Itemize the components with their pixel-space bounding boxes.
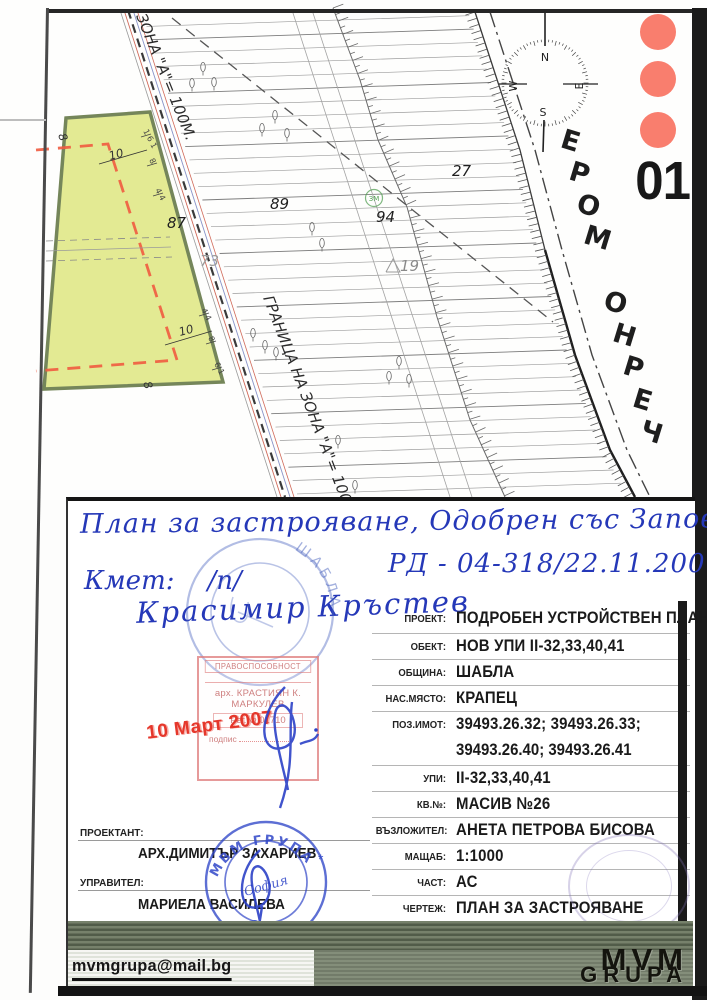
compass-s: S — [540, 106, 547, 119]
red-dot-2 — [640, 61, 676, 97]
table-row: КВ.№: МАСИВ №26 — [372, 791, 690, 818]
bottom-black-bar — [58, 986, 707, 996]
stamp-star-right: * — [318, 851, 324, 867]
red-dot-3 — [640, 112, 676, 148]
map-number-label: 94 — [376, 208, 395, 226]
row-value: ШАБЛА — [456, 662, 514, 682]
designer-label: ПРОЕКТАНТ: — [80, 827, 144, 839]
row-value: 1:1000 — [456, 846, 504, 866]
svg-text:ШАБЛА: ШАБЛА — [292, 540, 343, 611]
site-plan-map: ЗОНА "А"= 100М. ГРАНИЦА НА ЗОНА "А"= 100… — [0, 0, 707, 500]
compass-w: W — [507, 80, 520, 91]
row-value: 39493.26.32; 39493.26.33; — [456, 714, 641, 734]
row-label: МАЩАБ: — [376, 852, 446, 863]
row-label: ПОЗ.ИМОТ: — [376, 720, 446, 731]
row-value-line2: 39493.26.40; 39493.26.41 — [456, 740, 632, 760]
row-value: МАСИВ №26 — [456, 794, 550, 814]
table-row: ОБЕКТ: НОВ УПИ II-32,33,40,41 — [372, 633, 690, 660]
compass-e: E — [573, 82, 586, 89]
map-number-label: 87 — [167, 214, 187, 232]
sheet-number: 01 — [626, 150, 690, 212]
map-number-label: 19 — [400, 257, 419, 275]
row-value: КРАПЕЦ — [456, 688, 517, 708]
table-row: НАС.МЯСТО: КРАПЕЦ — [372, 685, 690, 712]
row-value: НОВ УПИ II-32,33,40,41 — [456, 636, 625, 656]
table-row: ПОЗ.ИМОТ: 39493.26.32; 39493.26.33; 3949… — [372, 711, 690, 766]
scan-artifact-line — [0, 119, 46, 121]
row-value: ПОДРОБЕН УСТРОЙСТВЕН ПЛАН — [456, 608, 707, 628]
row-label: НАС.МЯСТО: — [376, 694, 446, 705]
map-number-label: 89 — [270, 195, 289, 213]
row-label: ЧАСТ: — [376, 878, 446, 889]
row-label: ОБЩИНА: — [376, 668, 446, 679]
company-logo: MVM GRUPA — [520, 944, 688, 986]
svg-text:ЗМ: ЗМ — [369, 195, 380, 203]
row-label: УПИ: — [376, 774, 446, 785]
row-label: КВ.№: — [376, 800, 446, 811]
map-number-label: 27 — [452, 162, 472, 180]
row-value: АС — [456, 872, 478, 892]
row-label: ВЪЗЛОЖИТЕЛ: — [376, 826, 446, 837]
table-row: ОБЩИНА: ШАБЛА — [372, 659, 690, 686]
compass-n: N — [541, 51, 549, 64]
manager-label: УПРАВИТЕЛ: — [80, 877, 144, 889]
stamp-city: София — [242, 873, 289, 900]
row-value: II-32,33,40,41 — [456, 768, 551, 788]
table-row: УПИ: II-32,33,40,41 — [372, 765, 690, 792]
architect-signature — [230, 662, 350, 812]
row-label: ПРОЕКТ: — [376, 614, 446, 625]
handwriting-line1: План за застрояване, Одобрен със Заповед — [80, 503, 707, 540]
row-label: ЧЕРТЕЖ: — [376, 904, 446, 915]
map-number-label: 73 — [200, 252, 219, 270]
logo-grupa: GRUPA — [520, 964, 688, 986]
handwriting-line2: РД - 04-318/22.11.2007 — [388, 549, 707, 579]
top-border-line — [48, 9, 693, 13]
table-row: ПРОЕКТ: ПОДРОБЕН УСТРОЙСТВЕН ПЛАН — [372, 605, 690, 634]
email-text: mvmgrupa@mail.bg — [72, 956, 231, 981]
scanned-plan-page: ЗОНА "А"= 100М. ГРАНИЦА НА ЗОНА "А"= 100… — [0, 0, 707, 1000]
row-label: ОБЕКТ: — [376, 642, 446, 653]
red-dot-1 — [640, 14, 676, 50]
